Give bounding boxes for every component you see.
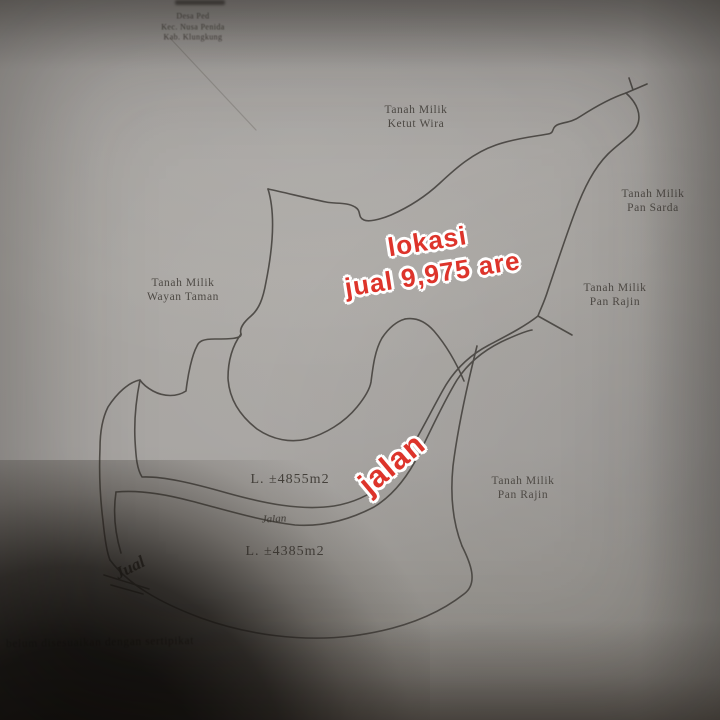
cropped-top-text xyxy=(175,0,225,5)
document-header: Desa Ped Kec. Nusa Penida Kab. Klungkung xyxy=(161,11,225,43)
owner-label-top: Tanah Milik Ketut Wira xyxy=(385,103,448,131)
owner-label-name: Pan Sarda xyxy=(622,201,685,215)
owner-label-right-lower: Tanah Milik Pan Rajin xyxy=(492,474,555,502)
boundary-left xyxy=(100,189,273,560)
header-line-regency: Kab. Klungkung xyxy=(161,32,225,43)
owner-label-name: Wayan Taman xyxy=(147,290,219,304)
north-point-mark xyxy=(626,78,647,93)
owner-label-title: Tanah Milik xyxy=(492,474,555,488)
owner-label-left: Tanah Milik Wayan Taman xyxy=(147,276,219,304)
area-label-upper: L. ±4855m2 xyxy=(250,472,329,488)
land-sketch-drawing xyxy=(0,0,720,720)
paper-crease xyxy=(170,38,256,130)
owner-label-name: Pan Rajin xyxy=(584,295,647,309)
owner-label-title: Tanah Milik xyxy=(147,276,219,290)
road-corridor-line xyxy=(115,492,121,553)
owner-label-title: Tanah Milik xyxy=(584,281,647,295)
road-label-small: Jalan xyxy=(261,512,286,525)
boundary-branch xyxy=(452,346,477,546)
owner-label-right-upper: Tanah Milik Pan Sarda xyxy=(622,187,685,215)
owner-label-name: Ketut Wira xyxy=(385,117,448,131)
header-line-village: Desa Ped xyxy=(161,11,225,22)
owner-label-title: Tanah Milik xyxy=(622,187,685,201)
header-line-district: Kec. Nusa Penida xyxy=(161,22,225,33)
area-label-lower: L. ±4385m2 xyxy=(245,544,324,560)
owner-label-name: Pan Rajin xyxy=(492,488,555,502)
inner-lobe xyxy=(228,319,405,441)
road-lower-line xyxy=(116,330,532,525)
owner-label-title: Tanah Milik xyxy=(385,103,448,117)
boundary-spur xyxy=(538,316,572,335)
road-upper-line xyxy=(135,316,538,508)
land-sketch-photo: Desa Ped Kec. Nusa Penida Kab. Klungkung… xyxy=(0,0,720,720)
owner-label-right-mid: Tanah Milik Pan Rajin xyxy=(584,281,647,309)
